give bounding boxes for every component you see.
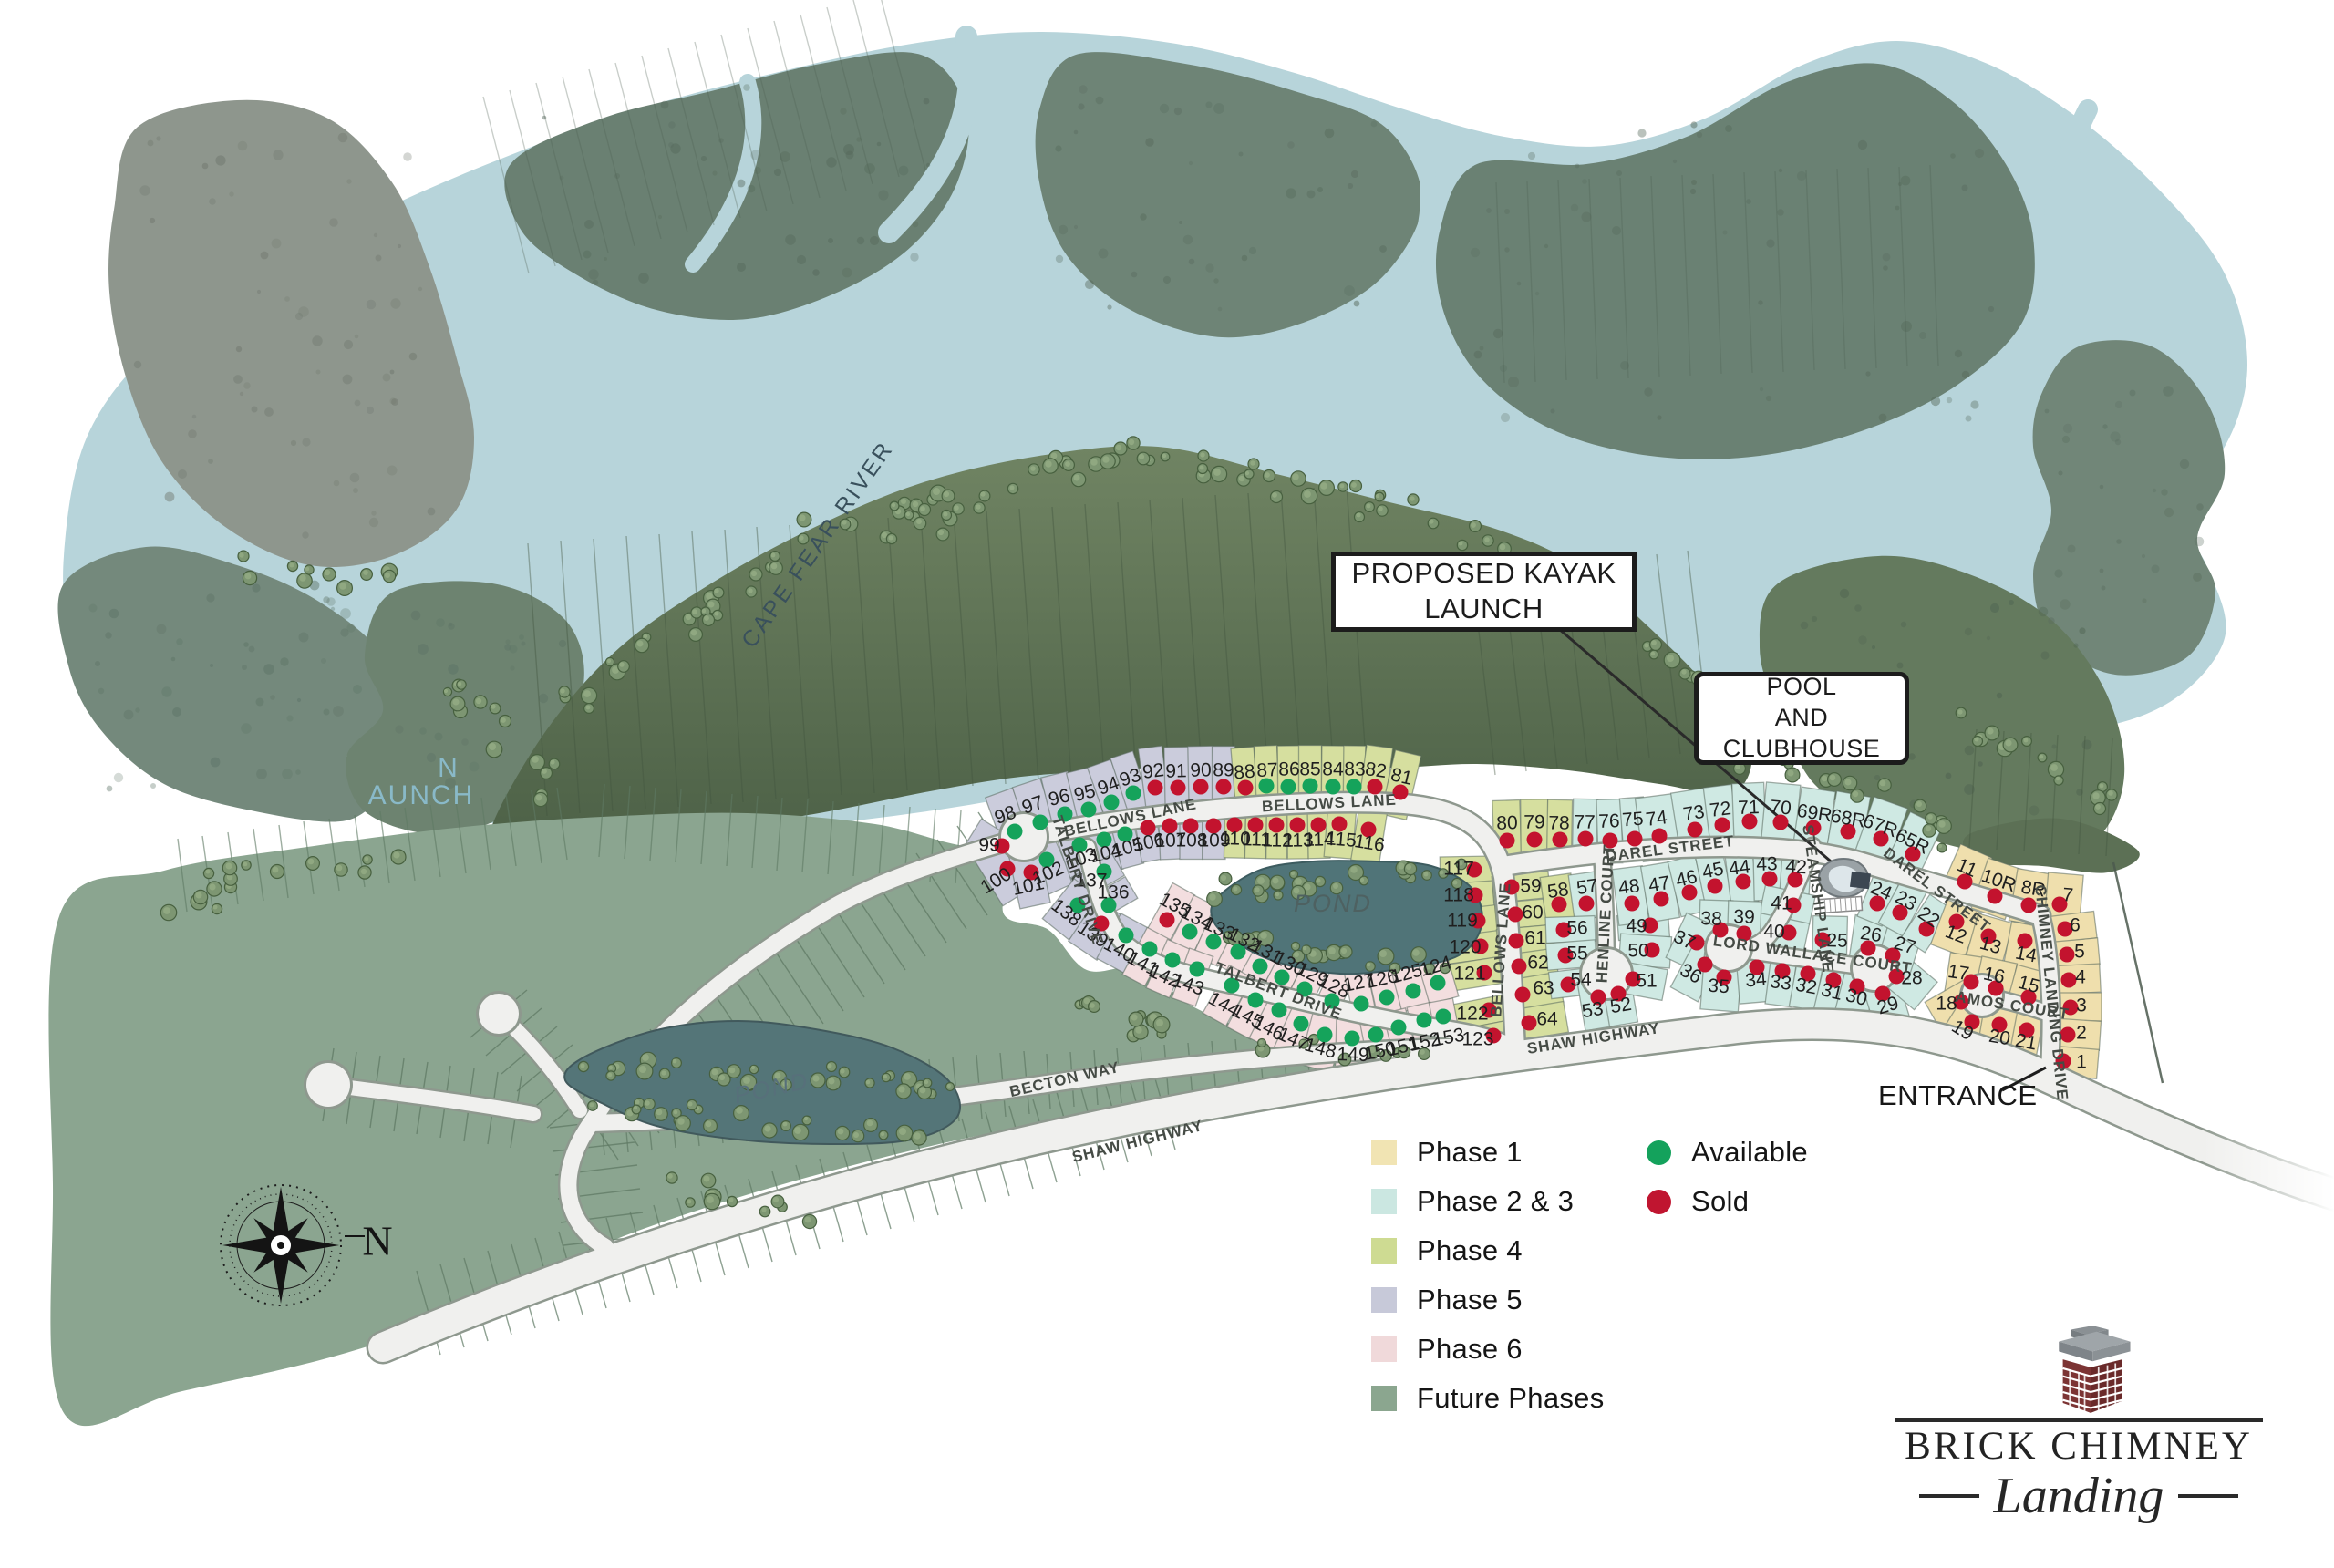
culdesac (479, 994, 519, 1034)
marsh-texture-dot (353, 685, 362, 694)
marsh-texture-dot (369, 518, 378, 527)
marsh-texture-dot (846, 151, 854, 160)
marsh-texture-dot (272, 239, 282, 249)
marsh-texture-dot (273, 150, 283, 160)
marsh-texture-dot (583, 251, 592, 259)
marsh-texture-dot (291, 440, 296, 446)
tree-highlight (1927, 814, 1933, 820)
marsh-texture-dot (428, 508, 436, 516)
marsh-texture-dot (202, 163, 209, 170)
tree-highlight (273, 867, 279, 873)
tree-highlight (607, 659, 611, 663)
legend-item-label: Future Phases (1417, 1382, 1605, 1415)
tree-highlight (583, 690, 591, 697)
tree-highlight (704, 1176, 710, 1182)
lot-number: 33 (1769, 971, 1792, 995)
tree-highlight (1957, 709, 1962, 714)
marsh-texture-dot (427, 753, 436, 762)
tree-highlight (1090, 1003, 1095, 1008)
marsh-texture-dot (2180, 459, 2189, 469)
marsh-texture-dot (390, 370, 395, 375)
marsh-texture-dot (2196, 503, 2204, 511)
marsh-texture-dot (2068, 545, 2076, 553)
entrance-label: ENTRANCE (1878, 1079, 2038, 1112)
tree-highlight (608, 1073, 613, 1078)
marsh-texture-dot (2142, 598, 2146, 603)
tree-highlight (828, 1064, 832, 1068)
marsh-texture-dot (333, 706, 344, 717)
chimney-icon (2010, 1324, 2147, 1415)
marsh-texture-dot (241, 723, 252, 734)
marsh-texture-dot (1987, 636, 1990, 640)
tree-highlight (1234, 887, 1238, 892)
marsh-texture-dot (1140, 213, 1146, 220)
tree-highlight (1645, 644, 1649, 648)
marsh-texture-dot (1966, 416, 1972, 422)
tree-highlight (715, 612, 719, 616)
marsh-texture-dot (1354, 301, 1360, 307)
marsh-texture-dot (797, 255, 806, 264)
marsh-texture-dot (150, 218, 155, 223)
marsh-texture-dot (870, 236, 879, 245)
legend-status-dot (1647, 1190, 1671, 1214)
marsh-texture-dot (1919, 332, 1926, 339)
marsh-texture-dot (1766, 396, 1771, 401)
tree-highlight (1379, 950, 1387, 957)
marsh-texture-dot (877, 142, 882, 147)
lot-number: 20 (1988, 1026, 2012, 1050)
marsh-texture-dot (924, 98, 930, 105)
marsh-texture-dot (448, 623, 454, 629)
tree-highlight (805, 1217, 811, 1223)
tree-highlight (550, 759, 554, 764)
marsh-texture-dot (1997, 693, 2002, 698)
marsh-texture-dot (243, 642, 249, 647)
marsh-texture-dot (738, 180, 746, 188)
marsh-texture-dot (98, 688, 104, 694)
marsh-texture-dot (1205, 101, 1212, 108)
marsh-texture-dot (1074, 225, 1078, 229)
marsh-texture-dot (2073, 643, 2078, 647)
marsh-texture-dot (1883, 253, 1891, 262)
tree-highlight (899, 1128, 906, 1135)
marsh-texture-dot (389, 397, 396, 404)
tree-highlight (476, 698, 481, 704)
marsh-texture-dot (658, 215, 662, 219)
legend-status-dot (1647, 1140, 1671, 1165)
marsh-texture-dot (1758, 300, 1762, 304)
marsh-texture-dot (435, 733, 443, 741)
marsh-texture-dot (209, 198, 216, 205)
marsh-texture-dot (1107, 304, 1111, 309)
marsh-texture-dot (1931, 397, 1940, 406)
tree-highlight (2108, 790, 2113, 796)
tree-highlight (913, 501, 918, 507)
marsh-texture-dot (1189, 259, 1195, 265)
tree-highlight (674, 1110, 678, 1115)
tree-highlight (812, 1075, 819, 1081)
tree-highlight (609, 1066, 613, 1069)
tree-highlight (1090, 459, 1097, 465)
marsh-texture-dot (1691, 180, 1697, 185)
tree-highlight (206, 870, 211, 874)
marsh-texture-dot (376, 255, 382, 262)
marsh-texture-dot (302, 531, 308, 538)
marsh-texture-dot (2059, 471, 2063, 476)
marsh-texture-dot (286, 715, 293, 721)
tree-highlight (1239, 476, 1244, 481)
legend-item: Phase 1 (1371, 1140, 1605, 1165)
lot-status-dot-available (1303, 779, 1318, 794)
tree-highlight (213, 905, 218, 910)
marsh-texture-dot (1055, 145, 1061, 151)
tree-highlight (1116, 445, 1121, 450)
marsh-island (2033, 340, 2226, 676)
marsh-texture-dot (312, 335, 322, 346)
marsh-texture-dot (419, 727, 427, 735)
tree-highlight (560, 688, 564, 693)
lot-number: 52 (1608, 994, 1633, 1018)
marsh-texture-dot (1797, 171, 1806, 181)
marsh-texture-dot (1673, 160, 1677, 163)
lot-number: 122 (1456, 1004, 1488, 1025)
marsh-texture-dot (1582, 212, 1592, 222)
marsh-texture-dot (1955, 350, 1962, 357)
marsh-texture-dot (124, 710, 134, 720)
tree-highlight (1845, 779, 1852, 786)
lot-status-dot-available (1417, 1013, 1432, 1028)
tree-highlight (2095, 804, 2101, 810)
lot-number: 78 (1548, 812, 1570, 833)
lot-number: 99 (978, 835, 999, 856)
tree-highlight (1135, 1026, 1141, 1033)
tree-highlight (1156, 1019, 1163, 1026)
tree-highlight (542, 769, 547, 774)
marsh-texture-dot (263, 664, 274, 675)
marsh-texture-dot (661, 101, 669, 109)
marsh-texture-dot (1160, 104, 1169, 113)
site-map-page: 9897969594939291908999100101102103104105… (0, 0, 2334, 1568)
marsh-texture-dot (1978, 761, 1983, 767)
lot-number: 14 (2014, 943, 2040, 967)
marsh-texture-dot (1145, 138, 1153, 146)
tree-highlight (1916, 801, 1922, 807)
tree-highlight (365, 857, 369, 861)
marsh-texture-dot (1163, 276, 1171, 284)
lot-number: 1 (2076, 1052, 2087, 1073)
marsh-texture-dot (1723, 231, 1728, 235)
marsh-texture-dot (436, 618, 445, 627)
logo-rule (1895, 1418, 2263, 1422)
marsh-texture-dot (256, 698, 264, 707)
legend-item-label: Phase 6 (1417, 1333, 1523, 1366)
marsh-texture-dot (857, 237, 864, 244)
tree-highlight (712, 1069, 718, 1076)
marsh-texture-dot (324, 709, 330, 716)
tree-highlight (444, 689, 448, 693)
tree-highlight (1213, 469, 1221, 476)
tree-highlight (901, 499, 906, 504)
tree-highlight (761, 1207, 766, 1212)
tree-highlight (706, 1121, 712, 1128)
tree-highlight (829, 1078, 835, 1085)
marsh-texture-dot (1865, 371, 1870, 376)
tree-highlight (1350, 866, 1358, 873)
tree-highlight (751, 571, 757, 576)
culdesac (306, 1063, 350, 1107)
marsh-texture-dot (1249, 247, 1256, 254)
tree-highlight (1272, 492, 1277, 498)
marsh-texture-dot (1858, 140, 1867, 150)
tree-highlight (163, 907, 170, 914)
lot-status-dot-available (1379, 990, 1395, 1006)
tree-highlight (1245, 471, 1249, 475)
marsh-texture-dot (242, 665, 247, 670)
tree-highlight (532, 756, 539, 763)
marsh-texture-dot (1287, 141, 1295, 149)
tree-highlight (980, 491, 985, 496)
marsh-texture-dot (2142, 554, 2145, 558)
marsh-texture-dot (211, 758, 221, 768)
marsh-texture-dot (1883, 265, 1888, 271)
tree-highlight (773, 1197, 779, 1202)
marsh-texture-dot (1474, 351, 1482, 359)
marsh-texture-dot (367, 407, 374, 414)
lot-status-dot-available (1272, 1003, 1287, 1018)
tree-highlight (799, 535, 803, 540)
marsh-texture-dot (295, 769, 301, 775)
tree-highlight (239, 552, 243, 557)
tree-highlight (667, 1173, 673, 1179)
marsh-texture-dot (1307, 191, 1316, 199)
marsh-texture-dot (1970, 400, 1978, 408)
marsh-texture-dot (1528, 152, 1535, 160)
marsh-texture-dot (1471, 248, 1480, 257)
lot-number: 70 (1769, 797, 1792, 820)
marsh-texture-dot (176, 638, 182, 645)
tree-highlight (840, 1068, 844, 1073)
tree-highlight (458, 682, 462, 686)
marsh-texture-dot (346, 624, 355, 632)
marsh-texture-dot (1962, 185, 1968, 191)
marsh-texture-dot (1379, 245, 1387, 253)
marsh-texture-dot (282, 769, 293, 779)
marsh-texture-dot (264, 407, 274, 417)
marsh-texture-dot (1508, 377, 1519, 387)
parcel-boundary (2113, 862, 2163, 1083)
tree-highlight (729, 1198, 734, 1202)
tree-highlight (1295, 878, 1302, 885)
tree-highlight (688, 1102, 693, 1107)
tree-highlight (729, 1068, 736, 1074)
marsh-texture-dot (233, 375, 243, 384)
lot-number: 64 (1536, 1009, 1558, 1030)
marsh-texture-dot (139, 185, 150, 195)
marsh-texture-dot (1074, 130, 1079, 135)
marsh-texture-dot (1079, 85, 1087, 93)
marsh-texture-dot (1644, 387, 1652, 396)
lot-number: 50 (1627, 941, 1648, 962)
tree-highlight (1484, 537, 1490, 542)
marsh-texture-dot (2063, 424, 2072, 433)
lot-number: 121 (1453, 964, 1485, 985)
lot-number: 3 (2076, 995, 2087, 1016)
marsh-texture-dot (588, 269, 598, 279)
marsh-texture-dot (178, 469, 187, 479)
marsh-texture-dot (355, 400, 361, 407)
legend-item: Available (1647, 1140, 1808, 1165)
marsh-texture-dot (390, 298, 400, 308)
lot-number: 76 (1598, 810, 1620, 832)
tree-highlight (920, 506, 925, 511)
logo-dash-left (1919, 1494, 1979, 1498)
legend-item-label: Phase 1 (1417, 1136, 1523, 1169)
marsh-texture-dot (148, 140, 154, 147)
tree-highlight (385, 573, 390, 578)
lot-number: 6 (2070, 915, 2081, 936)
tree-highlight (866, 1080, 871, 1085)
tree-highlight (1367, 963, 1371, 967)
marsh-texture-dot (135, 707, 139, 712)
legend-item: Phase 2 & 3 (1371, 1189, 1605, 1214)
tree-highlight (1292, 473, 1298, 480)
marsh-texture-dot (107, 786, 113, 792)
tree-highlight (1341, 948, 1347, 954)
pool-label-line1: POOL (1766, 672, 1836, 703)
tree-highlight (686, 614, 691, 620)
tree-highlight (635, 1100, 640, 1105)
marsh-texture-dot (334, 480, 340, 487)
legend-item: Phase 6 (1371, 1336, 1605, 1362)
marsh-texture-dot (2110, 431, 2120, 441)
tree-highlight (590, 1103, 594, 1108)
marsh-texture-dot (593, 280, 598, 285)
lot-number: 51 (1636, 971, 1657, 992)
marsh-texture-dot (2052, 745, 2057, 749)
legend-item: Phase 5 (1371, 1287, 1605, 1313)
marsh-texture-dot (1174, 108, 1182, 115)
marsh-texture-dot (1344, 285, 1355, 296)
marsh-texture-dot (353, 488, 358, 493)
marsh-texture-dot (1348, 183, 1353, 189)
tree-icon (672, 1058, 682, 1068)
marsh-texture-dot (2116, 539, 2122, 544)
marsh-texture-dot (913, 222, 919, 228)
tree-highlight (209, 883, 215, 890)
marsh-texture-dot (1096, 97, 1104, 105)
tree-highlight (748, 588, 752, 593)
tree-highlight (1293, 944, 1296, 947)
lot-number: 60 (1522, 903, 1543, 923)
marsh-texture-dot (331, 607, 335, 611)
lot-number: 63 (1533, 978, 1554, 999)
lot-number: 41 (1771, 893, 1792, 914)
lot-number: 120 (1449, 937, 1481, 958)
tree-highlight (1975, 738, 1979, 742)
marsh-texture-dot (1612, 226, 1621, 235)
tree-highlight (1257, 877, 1265, 884)
marsh-texture-dot (1544, 244, 1548, 248)
tree-highlight (838, 1129, 844, 1135)
lot-number: 45 (1700, 858, 1726, 882)
tree-icon (212, 903, 222, 913)
legend-item: Phase 4 (1371, 1238, 1605, 1264)
lot-number: 54 (1570, 970, 1592, 991)
tree-highlight (892, 503, 895, 507)
tree-icon (549, 758, 560, 769)
marsh-texture-dot (1189, 161, 1193, 165)
marsh-texture-dot (340, 608, 351, 619)
tree-highlight (1651, 652, 1655, 655)
lot-number: 59 (1520, 876, 1541, 897)
marsh-texture-dot (1874, 775, 1880, 780)
marsh-texture-dot (2039, 607, 2049, 617)
marsh-texture-dot (350, 473, 360, 483)
marsh-texture-dot (2029, 806, 2040, 816)
lot-number: 57 (1575, 875, 1599, 899)
marsh-texture-dot (1179, 221, 1182, 224)
tree-highlight (906, 512, 910, 516)
marsh-texture-dot (2045, 409, 2050, 414)
lot-number: 7 (2061, 884, 2074, 906)
lot-number: 5 (2074, 942, 2085, 963)
lot-status-dot-available (1007, 824, 1023, 840)
marsh-texture-dot (1551, 409, 1555, 414)
tree-highlight (691, 630, 697, 636)
tree-icon (1377, 505, 1388, 516)
marsh-texture-dot (506, 640, 511, 645)
marsh-texture-dot (1504, 209, 1510, 214)
tree-highlight (916, 519, 922, 524)
logo-script: Landing (1994, 1470, 2164, 1522)
marsh-texture-dot (371, 511, 376, 515)
marsh-texture-dot (243, 382, 250, 388)
lot-number: 119 (1447, 911, 1477, 932)
legend-phase-swatch (1371, 1386, 1397, 1411)
tree-highlight (954, 505, 959, 511)
marsh-texture-dot (1779, 169, 1782, 172)
marsh-texture-dot (2153, 489, 2156, 492)
tree-highlight (325, 570, 330, 575)
tree-highlight (1030, 466, 1036, 471)
tree-highlight (1209, 893, 1215, 900)
marsh-texture-dot (539, 694, 548, 703)
marsh-texture-dot (2100, 485, 2104, 490)
tree-highlight (305, 567, 310, 572)
marsh-texture-dot (1535, 292, 1539, 295)
tree-highlight (661, 1070, 666, 1075)
tree-highlight (361, 869, 367, 874)
tree-highlight (889, 536, 893, 541)
marsh-texture-dot (701, 156, 707, 161)
tree-highlight (1139, 454, 1144, 459)
lot-status-dot-sold (1625, 896, 1640, 912)
marsh-texture-dot (1504, 247, 1509, 252)
marsh-texture-dot (249, 646, 255, 653)
lot-number: 80 (1496, 812, 1518, 834)
marsh-texture-dot (1131, 272, 1138, 278)
marsh-texture-dot (828, 238, 833, 243)
lot-number: 35 (1708, 975, 1730, 998)
tree-highlight (2100, 784, 2104, 789)
marsh-texture-dot (1879, 414, 1887, 422)
tree-highlight (1360, 878, 1364, 882)
tree-highlight (771, 563, 778, 570)
lot-status-dot-available (1033, 815, 1048, 830)
marsh-texture-dot (2193, 573, 2202, 582)
tree-highlight (771, 553, 776, 558)
tree-highlight (1681, 669, 1686, 674)
